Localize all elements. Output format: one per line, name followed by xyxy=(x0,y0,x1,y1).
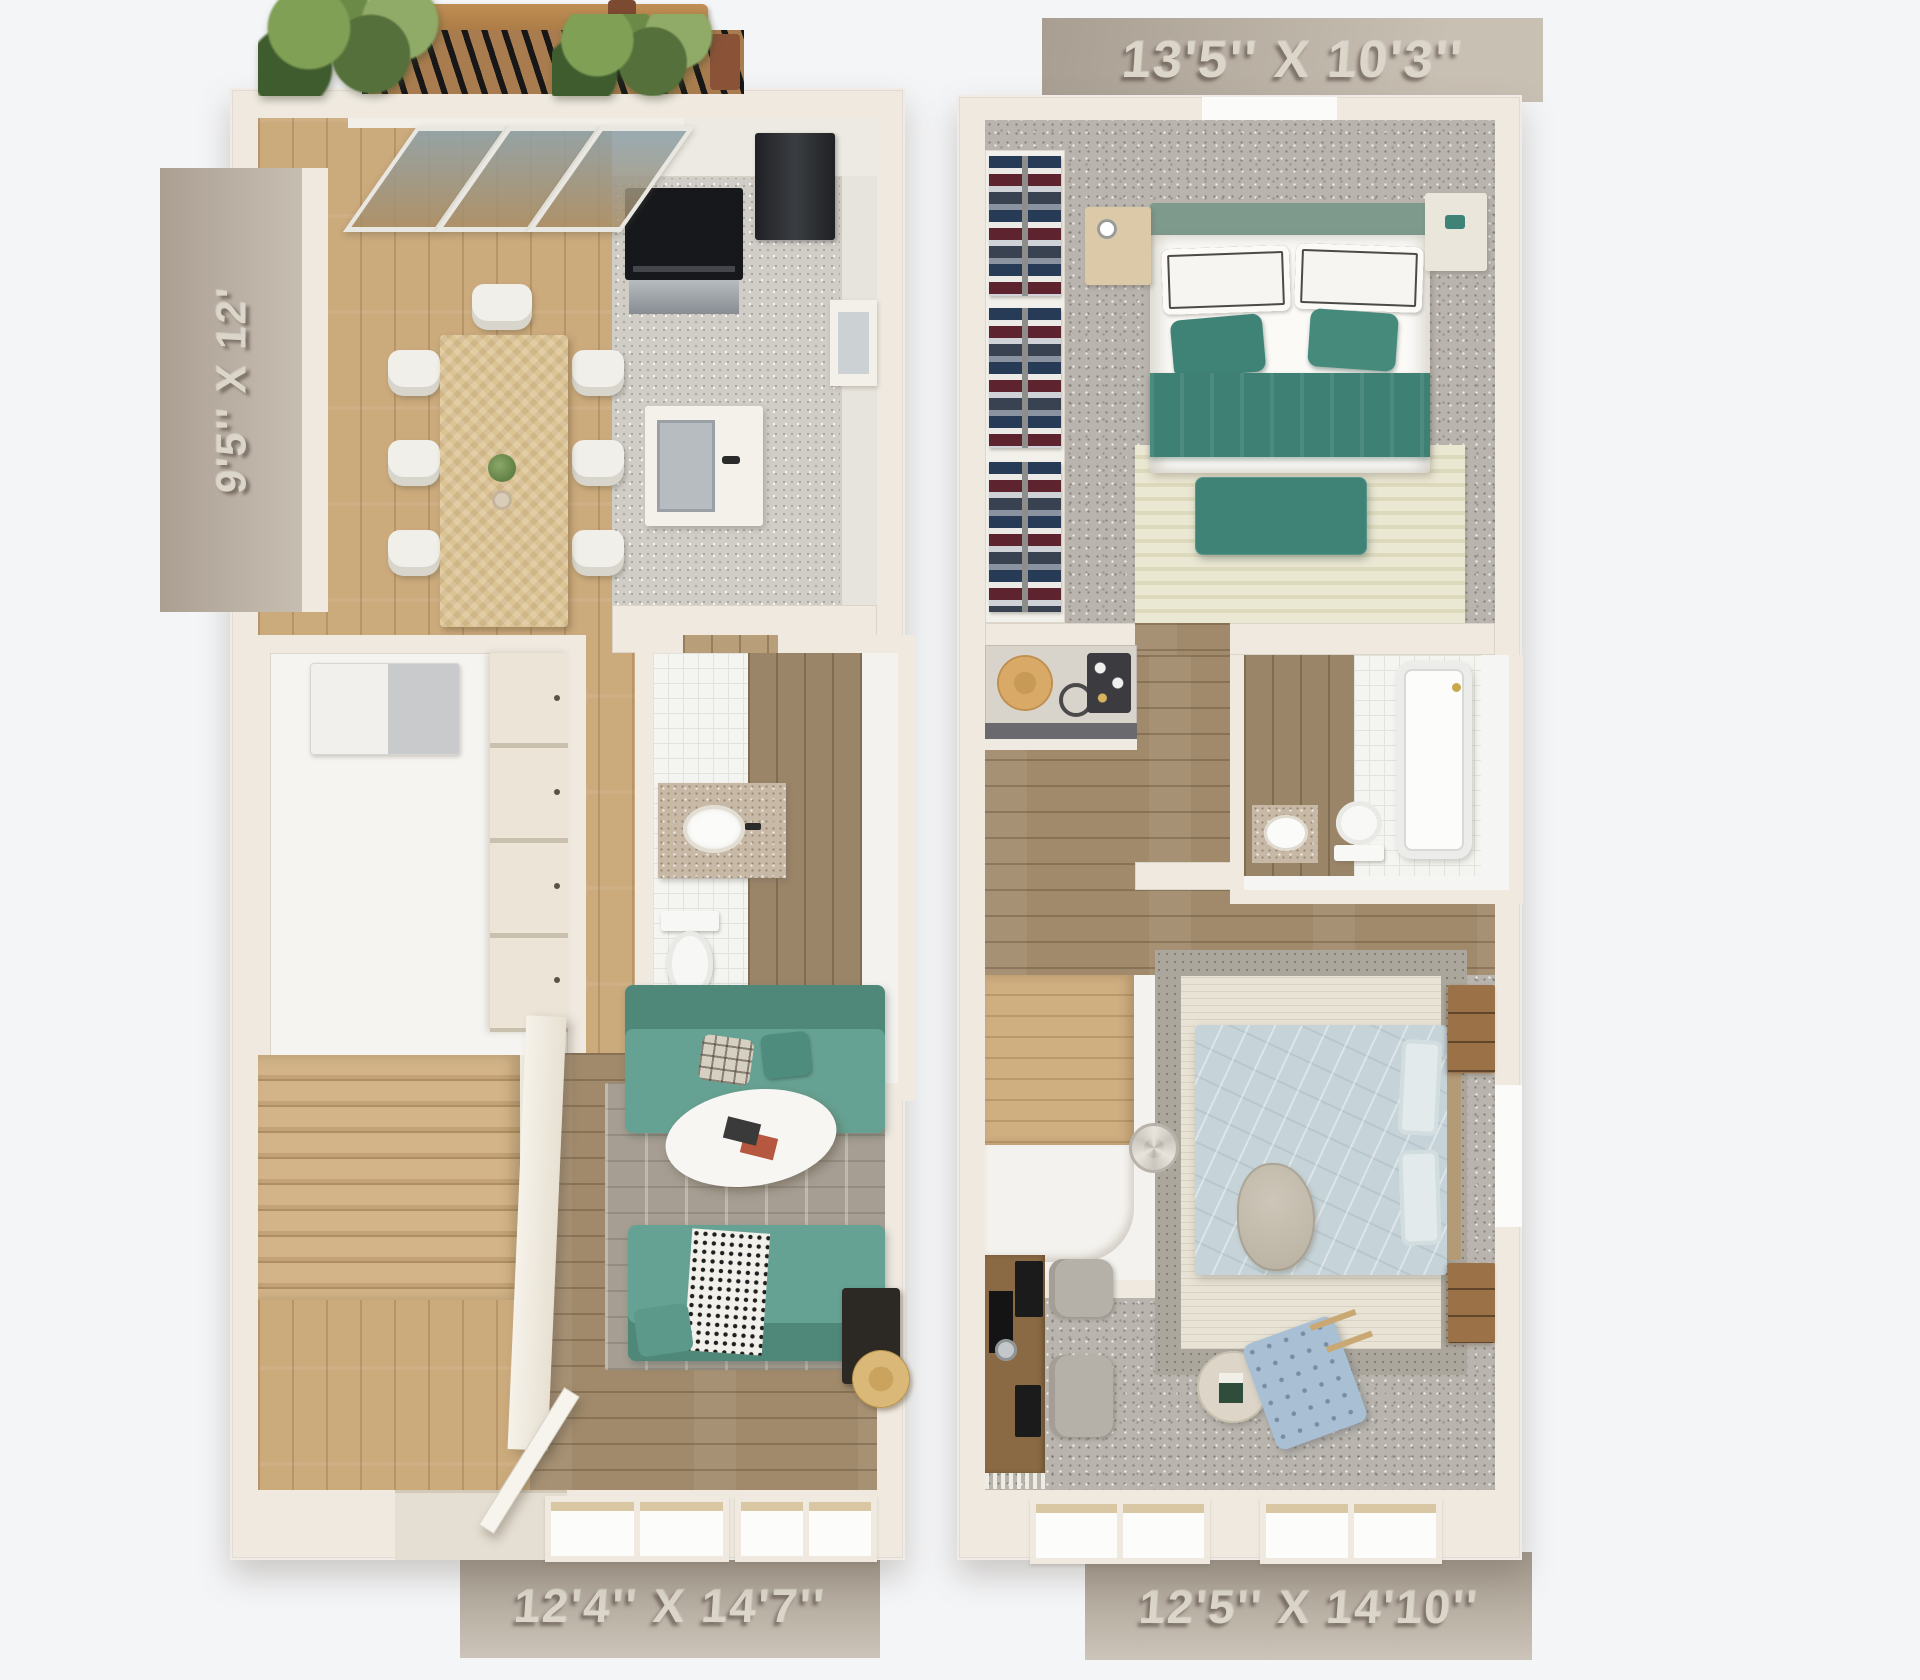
toilet-bowl xyxy=(1336,801,1382,845)
straw-hat xyxy=(997,655,1053,711)
desk-runner-fringe xyxy=(985,1473,1045,1489)
window-mullion xyxy=(803,1502,809,1556)
island-faucet xyxy=(722,456,740,464)
wardrobe-handle xyxy=(554,789,560,795)
pergola-post xyxy=(710,34,740,90)
closet-clothes xyxy=(989,156,1061,296)
throw-pillow-teal xyxy=(760,1031,812,1080)
unit-second-floor xyxy=(957,95,1522,1560)
accent-pillow-teal xyxy=(1170,313,1267,379)
nightstand-clock xyxy=(1097,219,1117,239)
wall-sink-basin xyxy=(838,312,869,374)
window xyxy=(735,1496,877,1562)
window xyxy=(545,1496,729,1562)
dresser xyxy=(1448,985,1495,1073)
bathtub xyxy=(1396,661,1472,859)
wardrobe-handle xyxy=(554,977,560,983)
nightstand xyxy=(1425,193,1487,271)
vanity-desk-nook xyxy=(985,645,1137,750)
table-book xyxy=(1219,1373,1243,1403)
stair-landing xyxy=(985,1145,1134,1262)
kitchen-fridge xyxy=(755,133,835,240)
window xyxy=(1202,97,1337,120)
kitchen-dishwasher xyxy=(629,280,739,314)
guest-bed-pillow xyxy=(1398,1039,1443,1136)
accent-pillow-teal xyxy=(1307,308,1399,372)
guest-bed-pillow xyxy=(1398,1149,1441,1245)
dining-chair xyxy=(388,350,440,396)
dining-chair xyxy=(388,530,440,576)
bed-pillow xyxy=(1294,243,1424,313)
table-centerpiece-plant xyxy=(488,454,516,482)
vanity-sink xyxy=(683,805,745,853)
sofa-cushion xyxy=(633,1302,694,1357)
wardrobe-handle xyxy=(554,695,560,701)
desk-chair xyxy=(1049,1259,1113,1317)
guest-bed-headboard xyxy=(1447,1040,1461,1260)
bathroom-sink xyxy=(1264,815,1308,851)
floorplan-canvas: 9'5'' X 12' 13'5'' X 10'3'' 12'4'' X 14'… xyxy=(0,0,1920,1680)
staircase-first-floor xyxy=(258,1055,534,1300)
window-mullion xyxy=(634,1502,640,1556)
deck-plants-right xyxy=(552,14,714,96)
knit-throw xyxy=(1237,1163,1315,1271)
desk-front-trim xyxy=(985,739,1137,750)
stair-treads xyxy=(985,975,1134,1145)
nightstand-decor xyxy=(1445,215,1465,229)
serving-tray xyxy=(1087,653,1131,713)
dimension-label-left-unit-bottom: 12'4'' X 14'7'' xyxy=(460,1552,880,1658)
dimension-text: 12'5'' X 14'10'' xyxy=(1137,1579,1480,1634)
bathroom-second-floor xyxy=(1230,655,1523,904)
desk-front-edge xyxy=(985,723,1137,739)
deck-plants-left xyxy=(258,0,440,96)
dining-chair xyxy=(572,440,624,486)
window-mullion xyxy=(1117,1504,1123,1558)
washer-dryer xyxy=(310,663,460,755)
dining-chair xyxy=(388,440,440,486)
dresser xyxy=(1448,1263,1495,1343)
window xyxy=(1260,1498,1442,1564)
dining-chair xyxy=(572,350,624,396)
hallway-doorway xyxy=(1135,623,1230,655)
houndstooth-throw xyxy=(684,1228,770,1355)
desk-chair xyxy=(1049,1355,1113,1437)
dimension-text: 12'4'' X 14'7'' xyxy=(512,1578,827,1633)
wardrobe-doors xyxy=(490,653,568,1032)
bed-throw-blanket xyxy=(1150,373,1430,457)
island-sink-basin xyxy=(657,420,715,512)
desk-microphone xyxy=(995,1339,1017,1361)
dimension-label-right-unit-bottom: 12'5'' X 14'10'' xyxy=(1085,1552,1532,1660)
toilet-tank xyxy=(1334,845,1384,861)
powder-room-doorway xyxy=(683,635,778,653)
balcony-deck xyxy=(270,0,744,94)
dimension-label-left-unit-side: 9'5'' X 12' xyxy=(160,168,328,612)
toilet-tank xyxy=(661,911,719,931)
unit-first-floor xyxy=(230,88,905,1560)
window xyxy=(1030,1498,1210,1564)
kitchen-counter-right xyxy=(840,176,877,605)
desk-keyboard xyxy=(1015,1261,1043,1317)
wardrobe-handle xyxy=(554,883,560,889)
bed-headboard xyxy=(1150,203,1430,235)
sun-hat xyxy=(852,1350,910,1408)
closet-column xyxy=(985,150,1065,623)
nightstand xyxy=(1085,207,1151,285)
throw-pillow-plaid xyxy=(697,1034,755,1087)
bathtub-faucet xyxy=(1452,683,1461,692)
dimension-label-right-unit-top: 13'5'' X 10'3'' xyxy=(1042,18,1543,102)
bed-pillow xyxy=(1161,245,1291,315)
table-bowl xyxy=(492,490,512,510)
dining-chair xyxy=(472,284,532,330)
window-mullion xyxy=(1348,1504,1354,1558)
dimension-text: 9'5'' X 12' xyxy=(207,285,255,494)
vanity-faucet xyxy=(745,823,761,830)
floor-fan xyxy=(1129,1123,1179,1173)
closet-clothes xyxy=(989,308,1061,448)
dimension-text: 13'5'' X 10'3'' xyxy=(1120,30,1465,90)
desk-keyboard xyxy=(1015,1385,1041,1437)
foot-bench xyxy=(1195,477,1367,555)
closet-clothes xyxy=(989,462,1061,612)
dining-chair xyxy=(572,530,624,576)
window xyxy=(1495,1085,1522,1227)
stove-handle xyxy=(633,266,735,272)
